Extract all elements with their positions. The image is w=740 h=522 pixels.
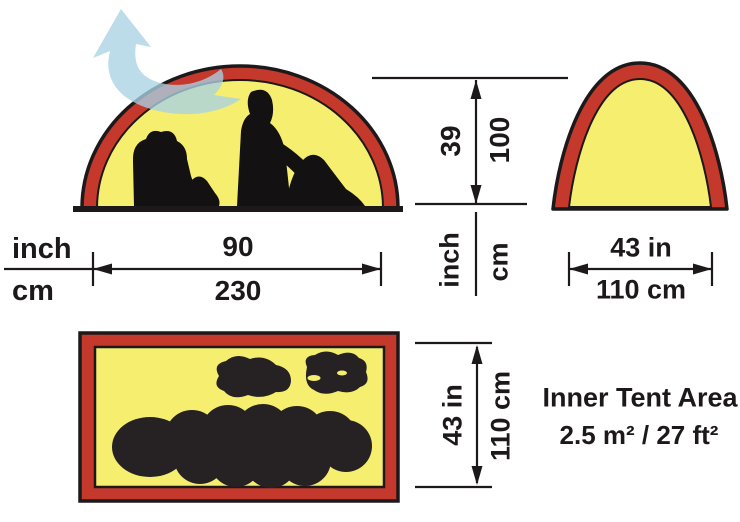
inner-tent-area-value: 2.5 m² / 27 ft²: [560, 422, 719, 448]
arrow-up-icon: [472, 345, 483, 364]
tent-spec-diagram: inch cm 90 230 39 100 inch cm 43 in 110 …: [0, 0, 740, 522]
width-cm-value: 230: [215, 277, 262, 305]
arrow-left-icon: [569, 264, 588, 275]
height-unit-inch-label: inch: [437, 232, 464, 288]
side-view-tent: [73, 9, 403, 212]
width-inch-value: 90: [222, 233, 253, 261]
arrow-up-icon: [471, 80, 482, 99]
arrow-left-icon: [93, 264, 112, 275]
floor-backpack-2-silhouette: [306, 352, 368, 394]
floor-plan: [80, 333, 398, 501]
front-view-tent: [553, 63, 727, 209]
height-dimension-line: [372, 78, 568, 296]
inner-tent-area-title: Inner Tent Area: [542, 385, 737, 412]
arrow-right-icon: [362, 264, 381, 275]
side-tent-groundline: [73, 206, 403, 212]
height-unit-cm-label: cm: [486, 242, 513, 281]
front-width-inch-value: 43 in: [610, 235, 672, 262]
height-inch-value: 39: [437, 125, 465, 156]
width-unit-cm-label: cm: [12, 277, 54, 306]
front-width-cm-value: 110 cm: [596, 277, 686, 304]
floor-depth-inch-value: 43 in: [440, 384, 467, 446]
height-cm-value: 100: [486, 117, 514, 164]
arrow-down-icon: [472, 466, 483, 485]
arrow-down-icon: [471, 185, 482, 204]
arrow-right-icon: [693, 264, 712, 275]
width-unit-inch-label: inch: [12, 235, 72, 264]
vent-arrow-icon: [93, 9, 241, 114]
floor-depth-cm-value: 110 cm: [488, 371, 515, 461]
